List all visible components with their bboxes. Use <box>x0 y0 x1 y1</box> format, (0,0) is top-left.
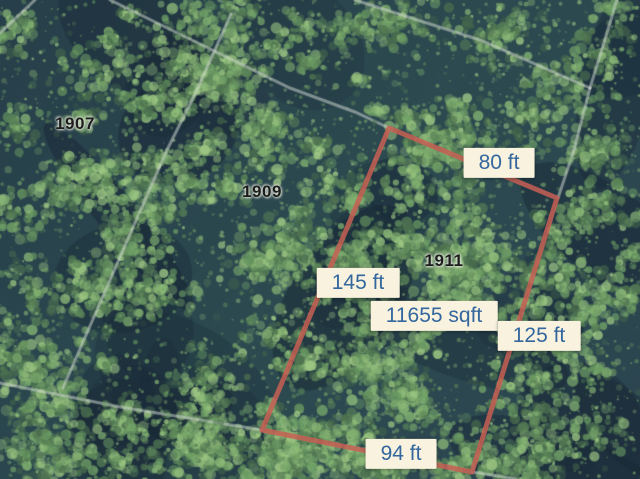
aerial-imagery <box>0 0 640 479</box>
aerial-map-viewport[interactable]: 19071909191180 ft145 ft11655 sqft125 ft9… <box>0 0 640 479</box>
